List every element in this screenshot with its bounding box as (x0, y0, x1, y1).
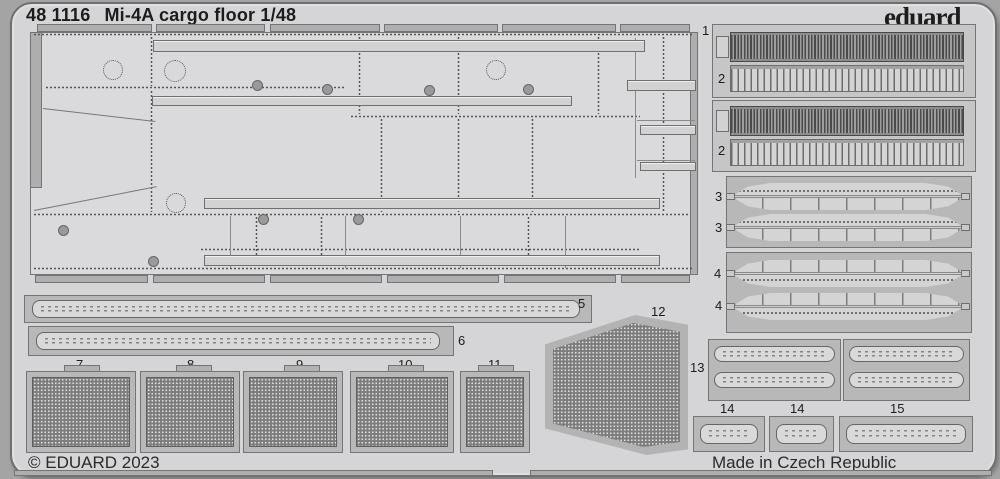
part-5-strip (32, 300, 580, 318)
part-number-14: 14 (790, 401, 804, 416)
part-13-strip (849, 346, 964, 362)
hinge-top (734, 293, 962, 305)
rivet-row (200, 248, 640, 251)
part-number-1: 1 (702, 23, 709, 38)
part-number-3: 3 (715, 220, 722, 235)
fastener-dot (58, 225, 69, 236)
fastener-dot (424, 85, 435, 96)
sheet-title: Mi-4A cargo floor 1/48 (104, 5, 296, 25)
hinge-top (734, 214, 962, 226)
part-10-mesh (356, 377, 448, 447)
hinge-pin-right (961, 224, 970, 231)
panel-line (637, 160, 695, 161)
floor-stiffener-bar (153, 40, 645, 52)
panel-line (635, 38, 636, 178)
part-1-ribbed-strip (730, 32, 964, 62)
hinge-pin-left (726, 303, 735, 310)
fastener-dot (258, 214, 269, 225)
floor-stiffener-bar (640, 162, 696, 171)
floor-right-rail (690, 32, 698, 275)
inspection-port (166, 193, 186, 213)
hinge-pin-right (961, 193, 970, 200)
part-14-strip (776, 424, 827, 444)
rivet-row (350, 115, 640, 118)
part-9-mesh (249, 377, 337, 447)
floor-bottom-tab (504, 275, 616, 283)
fret-rail (156, 24, 265, 32)
part-number-5: 5 (578, 296, 585, 311)
part-13-strip (714, 346, 835, 362)
floor-bottom-tab (270, 275, 382, 283)
part-2-ribbed-strip (730, 139, 964, 166)
hinge-top (734, 260, 962, 272)
part-number-15: 15 (890, 401, 904, 416)
part-number-4: 4 (714, 266, 721, 281)
rivet-column (662, 36, 665, 212)
part-1-ribbed-strip (730, 106, 964, 136)
part-number-3: 3 (715, 189, 722, 204)
fastener-dot (353, 214, 364, 225)
hinge-axis (734, 272, 962, 275)
fret-rail (620, 24, 690, 32)
part-number-2: 2 (718, 143, 725, 158)
hinge-bottom (734, 275, 962, 287)
part-14-strip (700, 424, 758, 444)
fret-rail (502, 24, 616, 32)
fastener-dot (322, 84, 333, 95)
fastener-dot (252, 80, 263, 91)
photo-etch-fret-scan: 48 1116Mi-4A cargo floor 1/48 eduard © E… (0, 0, 1000, 479)
part-number-2: 2 (718, 71, 725, 86)
inspection-port (103, 60, 123, 80)
floor-bottom-tab (387, 275, 499, 283)
rivet-column (150, 90, 153, 212)
fret-rail (14, 470, 493, 476)
part-4-hinge (734, 260, 962, 287)
rivet-row (45, 86, 345, 89)
floor-stiffener-bar (204, 255, 660, 266)
strip-end-cap (716, 36, 729, 58)
floor-stiffener-bar (640, 125, 696, 135)
rivet-row (33, 267, 693, 270)
part-4-hinge (734, 293, 962, 320)
hinge-pin-left (726, 224, 735, 231)
part-number-6: 6 (458, 333, 465, 348)
part-3-hinge (734, 214, 962, 241)
strip-end-cap (716, 110, 729, 132)
part-8-mesh (146, 377, 234, 447)
hinge-axis (734, 226, 962, 229)
part-11-mesh (466, 377, 524, 447)
part-6-strip (36, 332, 440, 350)
part-12-mesh (553, 323, 680, 447)
part-15-strip (846, 424, 966, 444)
part-13-strip (714, 372, 835, 388)
fret-rail (530, 470, 992, 476)
floor-stiffener-bar (627, 80, 696, 91)
hinge-axis (734, 305, 962, 308)
part-number-4: 4 (715, 298, 722, 313)
part-number-14: 14 (720, 401, 734, 416)
sheet-header: 48 1116Mi-4A cargo floor 1/48 (26, 5, 296, 26)
fret-rail (37, 24, 152, 32)
inspection-port (486, 60, 506, 80)
hinge-bottom (734, 229, 962, 241)
part-number-12: 12 (651, 304, 665, 319)
part-7-mesh (32, 377, 130, 447)
floor-left-rail (30, 32, 42, 188)
floor-bottom-tab (621, 275, 690, 283)
hinge-bottom (734, 198, 962, 210)
floor-stiffener-bar (152, 96, 572, 106)
hinge-axis (734, 195, 962, 198)
hinge-pin-right (961, 270, 970, 277)
hinge-pin-left (726, 270, 735, 277)
inspection-port (164, 60, 186, 82)
fret-rail (270, 24, 380, 32)
panel-line (637, 120, 695, 121)
hinge-pin-left (726, 193, 735, 200)
rivet-row (33, 33, 693, 36)
catalog-number: 48 1116 (26, 5, 90, 25)
floor-bottom-tab (153, 275, 265, 283)
hinge-pin-right (961, 303, 970, 310)
fastener-dot (148, 256, 159, 267)
part-number-13: 13 (690, 360, 704, 375)
part-2-ribbed-strip (730, 65, 964, 92)
part-13-strip (849, 372, 964, 388)
part-3-hinge (734, 183, 962, 210)
fastener-dot (523, 84, 534, 95)
floor-stiffener-bar (204, 198, 660, 209)
floor-bottom-tab (35, 275, 148, 283)
hinge-bottom (734, 308, 962, 320)
fret-rail (384, 24, 498, 32)
hinge-top (734, 183, 962, 195)
